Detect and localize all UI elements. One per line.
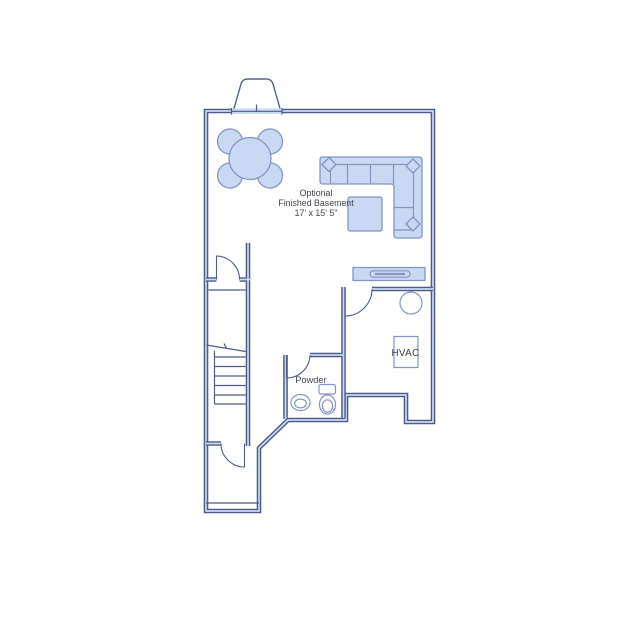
room-title-line1: Optional <box>300 188 333 198</box>
utility-room: HVAC <box>391 292 422 368</box>
room-title: Optional Finished Basement 17' x 15' 5" <box>278 188 354 218</box>
hvac-label: HVAC <box>391 348 419 359</box>
staircase <box>206 290 259 503</box>
utility-room-door <box>345 289 372 316</box>
dining-set <box>218 129 283 188</box>
toilet-tank <box>319 385 336 395</box>
floor-plan-drawing: HVAC Powder Optional Finished Basement 1… <box>0 0 640 640</box>
powder-room: Powder <box>291 375 336 414</box>
tv-screen-line <box>375 273 405 275</box>
toilet-bowl-inner <box>322 400 332 412</box>
powder-label: Powder <box>295 375 326 385</box>
sink-basin <box>295 399 307 408</box>
stair-treads <box>215 351 246 404</box>
floor-plan-page: HVAC Powder Optional Finished Basement 1… <box>0 0 640 640</box>
under-stair-door <box>221 444 245 468</box>
room-title-line3: 17' x 15' 5" <box>295 208 338 218</box>
doors <box>217 256 373 467</box>
media-console <box>353 268 425 281</box>
water-heater <box>400 292 422 314</box>
stair-hall-door <box>217 256 240 280</box>
stair-break-line <box>207 344 246 352</box>
round-dining-table <box>229 138 271 180</box>
room-title-line2: Finished Basement <box>278 198 354 208</box>
